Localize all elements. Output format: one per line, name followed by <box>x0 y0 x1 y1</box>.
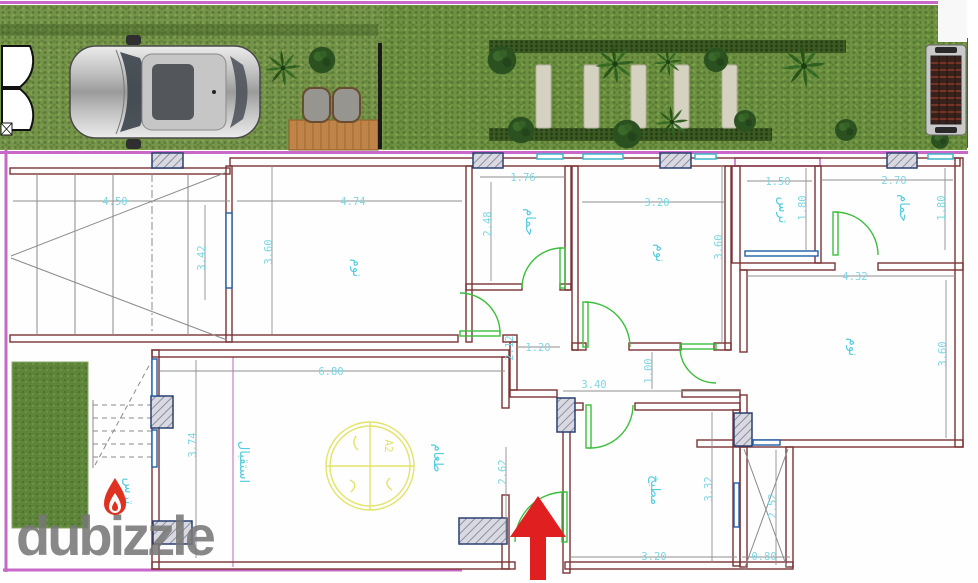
entrance-arrow <box>510 496 566 580</box>
dim-text: 3.42 <box>196 245 208 270</box>
dim-text: 2.48 <box>482 211 494 236</box>
window <box>583 154 623 159</box>
dim-text: 1.76 <box>510 172 535 184</box>
dim-text: 2.62 <box>497 459 509 484</box>
dim-text: 1.00 <box>643 358 655 383</box>
deck-chair <box>303 88 330 122</box>
dim-text: 3.20 <box>641 551 666 563</box>
window <box>734 483 739 527</box>
dim-text: 4.74 <box>340 196 365 208</box>
dim-text: 6.80 <box>318 366 343 378</box>
room-label: حمام <box>896 194 911 222</box>
dim-text: 4.50 <box>102 196 127 208</box>
door <box>522 248 565 288</box>
dim-text: 3.60 <box>713 234 725 259</box>
window <box>152 430 157 467</box>
car-mirror <box>126 35 141 45</box>
door <box>583 302 630 347</box>
room-label: نوم <box>845 338 860 356</box>
walls <box>152 158 963 573</box>
entrance-gate <box>1 46 33 135</box>
car-top-view <box>70 35 260 149</box>
dim-text: 3.60 <box>937 341 949 366</box>
dim-text: 3.40 <box>581 379 606 391</box>
window <box>695 154 716 159</box>
window <box>745 251 818 256</box>
stamp-label: A2 <box>382 439 395 452</box>
dim-text: 0.80 <box>751 551 776 563</box>
listing-floorplan-image: 4.50 3.42 4.74 3.60 1.76 2.48 3.20 3.60 … <box>0 0 978 583</box>
bbq-grill <box>926 45 966 135</box>
dim-text: 2.12 <box>504 335 516 360</box>
dim-text: 2.52 <box>767 493 779 518</box>
stepping-stones <box>536 65 737 128</box>
room-label: نوم <box>652 244 667 262</box>
room-label: طعام <box>430 444 445 473</box>
dim-text: 1.80 <box>797 195 809 220</box>
dim-text: 3.74 <box>187 432 199 457</box>
dim-text: 2.70 <box>881 175 906 187</box>
unit-stamp: A2 <box>326 422 414 510</box>
dim-text: 3.20 <box>644 197 669 209</box>
drawing-layer: 4.50 3.42 4.74 3.60 1.76 2.48 3.20 3.60 … <box>0 0 978 583</box>
dim-text: 1.50 <box>765 176 790 188</box>
window <box>152 359 157 396</box>
room-label: مطبخ <box>647 475 662 505</box>
window <box>226 213 232 288</box>
window <box>753 440 780 445</box>
dim-text: 1.80 <box>936 195 948 220</box>
flame-icon <box>102 477 128 519</box>
deck-chair <box>333 88 360 122</box>
watermark: dubizzle <box>16 503 213 568</box>
dim-text: 3.32 <box>703 476 715 501</box>
door <box>833 212 878 255</box>
door <box>680 344 716 383</box>
door <box>586 405 633 448</box>
dim-text: 4.32 <box>842 271 867 283</box>
dim-text: 3.60 <box>263 239 275 264</box>
window <box>537 154 563 159</box>
car-mirror <box>126 139 141 149</box>
garage-ramp <box>10 166 458 342</box>
room-label: حمام <box>522 208 537 236</box>
room-label: ترس <box>775 197 790 224</box>
stairs <box>93 362 153 468</box>
room-label: نوم <box>349 259 364 277</box>
room-label: استقبال <box>236 441 251 483</box>
garden-deck <box>289 88 378 150</box>
window <box>928 154 953 159</box>
dim-text: 1.20 <box>525 342 550 354</box>
